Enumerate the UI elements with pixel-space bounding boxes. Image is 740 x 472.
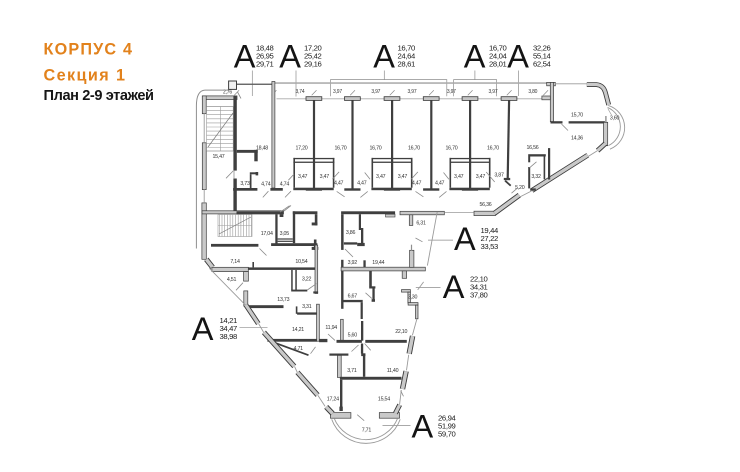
svg-text:16,70: 16,70 [334,146,346,152]
svg-text:3,31: 3,31 [302,304,312,310]
svg-text:3,47: 3,47 [298,174,308,180]
svg-text:4,47: 4,47 [435,181,445,187]
svg-text:3,60: 3,60 [610,115,620,121]
svg-text:4,74: 4,74 [261,181,271,187]
svg-text:3,97: 3,97 [408,89,417,95]
svg-text:37,80: 37,80 [470,291,488,300]
svg-text:3,32: 3,32 [531,174,541,180]
svg-text:3,47: 3,47 [376,174,386,180]
svg-text:29,16: 29,16 [304,60,322,69]
svg-text:16,70: 16,70 [445,146,457,152]
svg-text:А: А [412,409,434,445]
svg-text:3,22: 3,22 [302,276,312,282]
svg-text:3,73: 3,73 [240,181,250,187]
svg-text:3,47: 3,47 [476,174,486,180]
svg-text:56,36: 56,36 [479,202,491,208]
svg-text:17,04: 17,04 [261,231,273,237]
svg-text:14,36: 14,36 [571,136,583,142]
svg-text:28,61: 28,61 [398,60,416,69]
svg-text:3,05: 3,05 [280,231,290,237]
svg-text:11,40: 11,40 [387,368,399,374]
svg-text:4,74: 4,74 [280,181,290,187]
svg-text:5,20: 5,20 [515,185,525,191]
svg-text:11,94: 11,94 [325,325,337,331]
svg-text:3,86: 3,86 [346,230,356,236]
svg-text:3,97: 3,97 [447,89,456,95]
svg-text:59,70: 59,70 [438,429,456,438]
svg-text:3,92: 3,92 [348,260,358,266]
svg-text:4,47: 4,47 [357,181,367,187]
svg-text:3,97: 3,97 [489,89,498,95]
svg-text:16,56: 16,56 [526,145,538,151]
svg-text:7,14: 7,14 [230,259,240,265]
svg-text:А: А [234,39,256,75]
svg-text:4,47: 4,47 [412,181,422,187]
svg-text:14,21: 14,21 [292,327,304,333]
svg-text:3,97: 3,97 [371,89,380,95]
svg-text:10,54: 10,54 [295,259,307,265]
svg-text:62,54: 62,54 [533,60,552,69]
svg-text:7,71: 7,71 [362,427,372,433]
svg-text:22,10: 22,10 [395,329,407,335]
svg-text:А: А [373,39,395,75]
svg-text:15,47: 15,47 [212,154,224,160]
svg-text:33,53: 33,53 [481,242,499,251]
svg-text:17,20: 17,20 [295,146,307,152]
svg-text:13,73: 13,73 [277,297,289,303]
svg-text:16,70: 16,70 [369,146,381,152]
svg-text:3,97: 3,97 [333,89,342,95]
svg-text:А: А [192,311,214,347]
svg-text:3,71: 3,71 [347,368,357,374]
svg-text:4,47: 4,47 [334,181,344,187]
svg-text:28,01: 28,01 [489,60,507,69]
svg-text:16,70: 16,70 [408,146,420,152]
svg-text:19,44: 19,44 [372,260,384,266]
svg-text:3,30: 3,30 [408,294,418,300]
svg-text:План 2-9 этажей: План 2-9 этажей [44,88,155,104]
svg-text:КОРПУС 4: КОРПУС 4 [44,41,133,59]
svg-text:3,80: 3,80 [528,89,537,95]
svg-text:6,67: 6,67 [348,294,358,300]
svg-text:3,87: 3,87 [494,172,504,178]
svg-text:А: А [279,39,301,75]
svg-text:А: А [443,269,465,305]
svg-text:3,47: 3,47 [454,174,464,180]
svg-text:15,54: 15,54 [378,396,390,402]
svg-text:А: А [507,39,529,75]
svg-text:17,24: 17,24 [327,396,339,402]
svg-text:3,47: 3,47 [398,174,408,180]
svg-text:6,31: 6,31 [416,220,426,226]
svg-text:29,71: 29,71 [256,60,274,69]
svg-text:Секция 1: Секция 1 [44,67,126,85]
svg-text:38,98: 38,98 [220,332,238,341]
svg-text:16,70: 16,70 [487,146,499,152]
svg-text:15,70: 15,70 [571,112,583,118]
svg-text:4,51: 4,51 [227,277,237,283]
svg-text:3,74: 3,74 [296,89,305,95]
svg-text:3,47: 3,47 [320,174,330,180]
svg-text:18,48: 18,48 [256,146,268,152]
svg-text:4,71: 4,71 [294,346,304,352]
svg-text:5,60: 5,60 [348,333,358,339]
svg-text:А: А [464,39,486,75]
svg-text:А: А [454,221,476,257]
